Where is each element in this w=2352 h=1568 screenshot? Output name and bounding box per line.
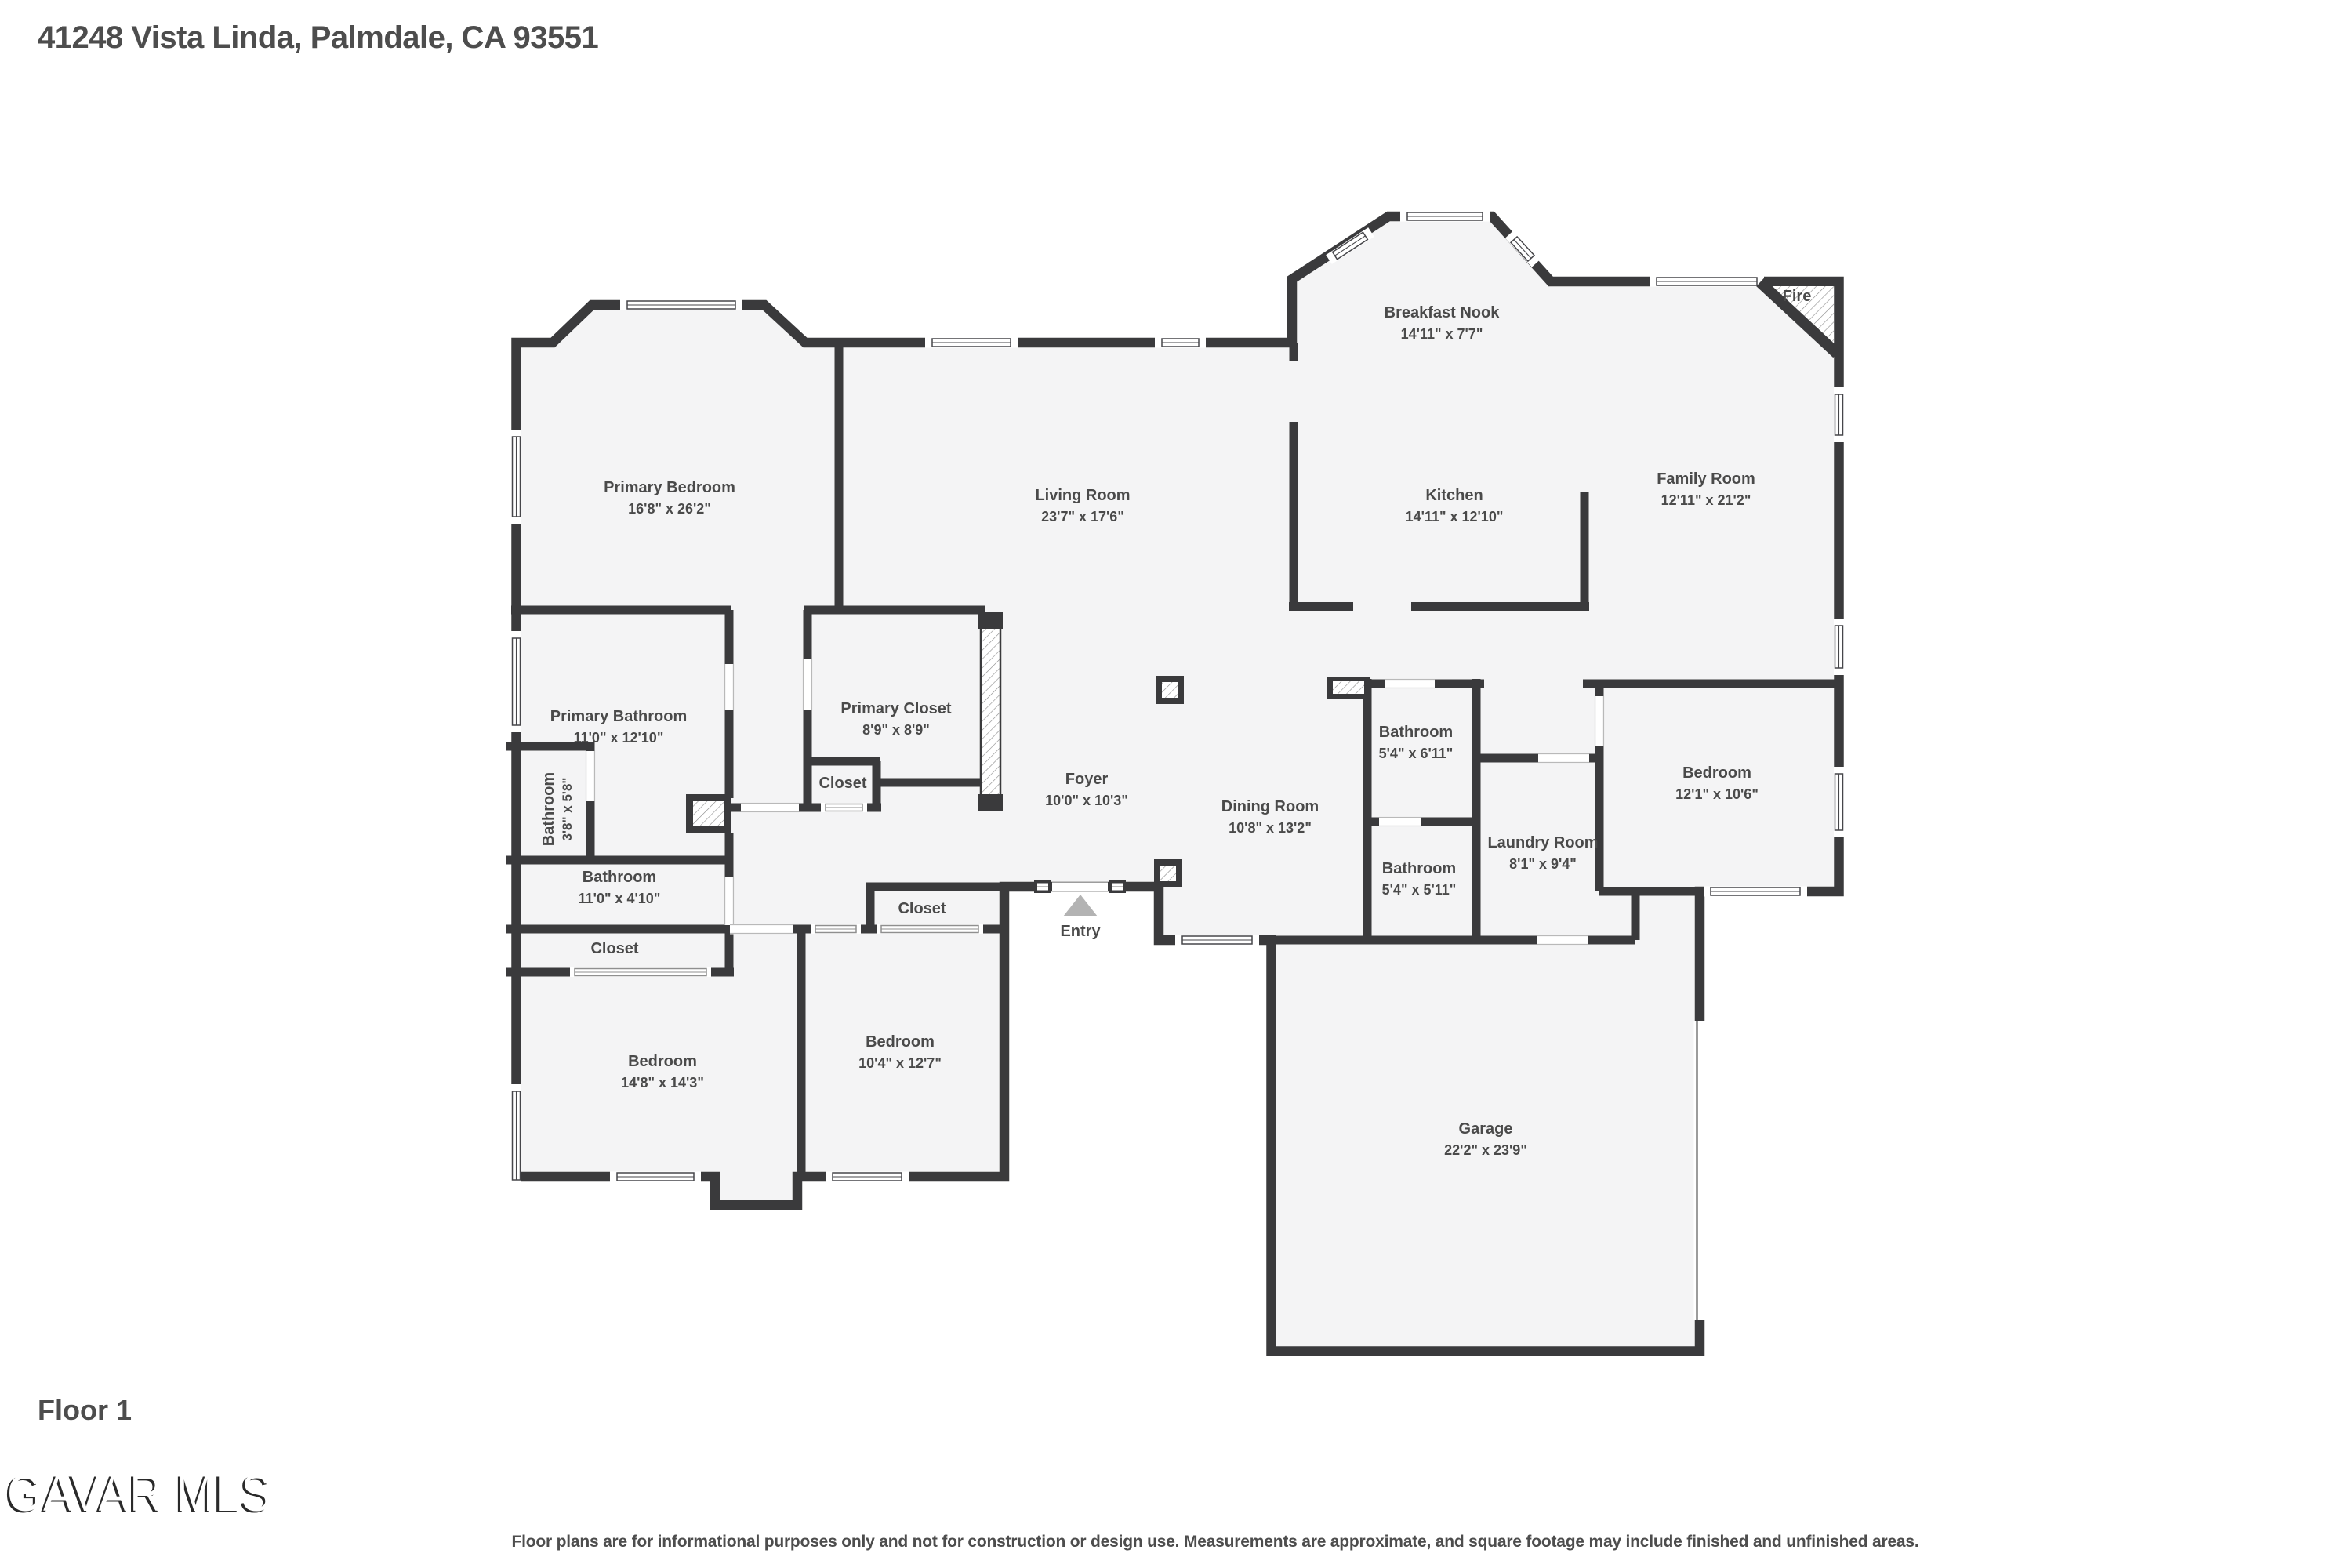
svg-text:Primary Closet: Primary Closet (840, 700, 952, 717)
svg-text:Primary Bathroom: Primary Bathroom (550, 708, 688, 725)
svg-text:Bathroom: Bathroom (583, 869, 656, 886)
svg-text:Family Room: Family Room (1657, 470, 1755, 488)
svg-text:11'0" x 12'10": 11'0" x 12'10" (574, 730, 664, 746)
svg-text:22'2" x 23'9": 22'2" x 23'9" (1444, 1142, 1527, 1158)
svg-text:Closet: Closet (818, 775, 866, 792)
svg-text:16'8" x 26'2": 16'8" x 26'2" (628, 501, 711, 517)
svg-text:Bathroom: Bathroom (540, 772, 557, 846)
svg-text:Living Room: Living Room (1035, 487, 1130, 504)
svg-text:12'11" x 21'2": 12'11" x 21'2" (1661, 492, 1751, 508)
svg-text:Bedroom: Bedroom (1682, 764, 1751, 782)
svg-text:Bathroom: Bathroom (1379, 724, 1453, 741)
svg-text:14'8" x 14'3": 14'8" x 14'3" (621, 1075, 704, 1091)
svg-text:Garage: Garage (1459, 1120, 1513, 1138)
svg-text:Kitchen: Kitchen (1425, 487, 1483, 504)
svg-text:10'4" x 12'7": 10'4" x 12'7" (858, 1055, 942, 1071)
svg-text:Primary Bedroom: Primary Bedroom (604, 479, 735, 496)
svg-text:8'1" x 9'4": 8'1" x 9'4" (1509, 856, 1577, 872)
svg-text:10'8" x 13'2": 10'8" x 13'2" (1229, 820, 1312, 836)
svg-text:14'11" x 12'10": 14'11" x 12'10" (1406, 509, 1504, 524)
svg-text:12'1" x 10'6": 12'1" x 10'6" (1675, 786, 1759, 802)
svg-text:Closet: Closet (590, 940, 638, 957)
svg-text:14'11" x 7'7": 14'11" x 7'7" (1401, 326, 1483, 342)
svg-text:Closet: Closet (898, 900, 946, 917)
svg-text:Bedroom: Bedroom (628, 1053, 697, 1070)
svg-text:Dining Room: Dining Room (1221, 798, 1319, 815)
svg-text:Foyer: Foyer (1065, 771, 1109, 788)
svg-text:8'9" x 8'9": 8'9" x 8'9" (862, 722, 930, 738)
svg-text:Bathroom: Bathroom (1382, 860, 1456, 877)
svg-text:5'4" x 6'11": 5'4" x 6'11" (1379, 746, 1454, 761)
svg-text:Entry: Entry (1060, 923, 1101, 940)
svg-text:Laundry Room: Laundry Room (1487, 834, 1598, 851)
svg-text:23'7" x 17'6": 23'7" x 17'6" (1041, 509, 1124, 524)
svg-text:5'4" x 5'11": 5'4" x 5'11" (1382, 882, 1457, 898)
svg-text:Breakfast Nook: Breakfast Nook (1385, 304, 1501, 321)
svg-text:3'8" x 5'8": 3'8" x 5'8" (560, 778, 575, 841)
svg-text:Bedroom: Bedroom (866, 1033, 935, 1051)
svg-text:10'0" x 10'3": 10'0" x 10'3" (1045, 793, 1128, 808)
svg-text:11'0" x 4'10": 11'0" x 4'10" (579, 891, 661, 906)
svg-text:Fire: Fire (1783, 288, 1812, 305)
